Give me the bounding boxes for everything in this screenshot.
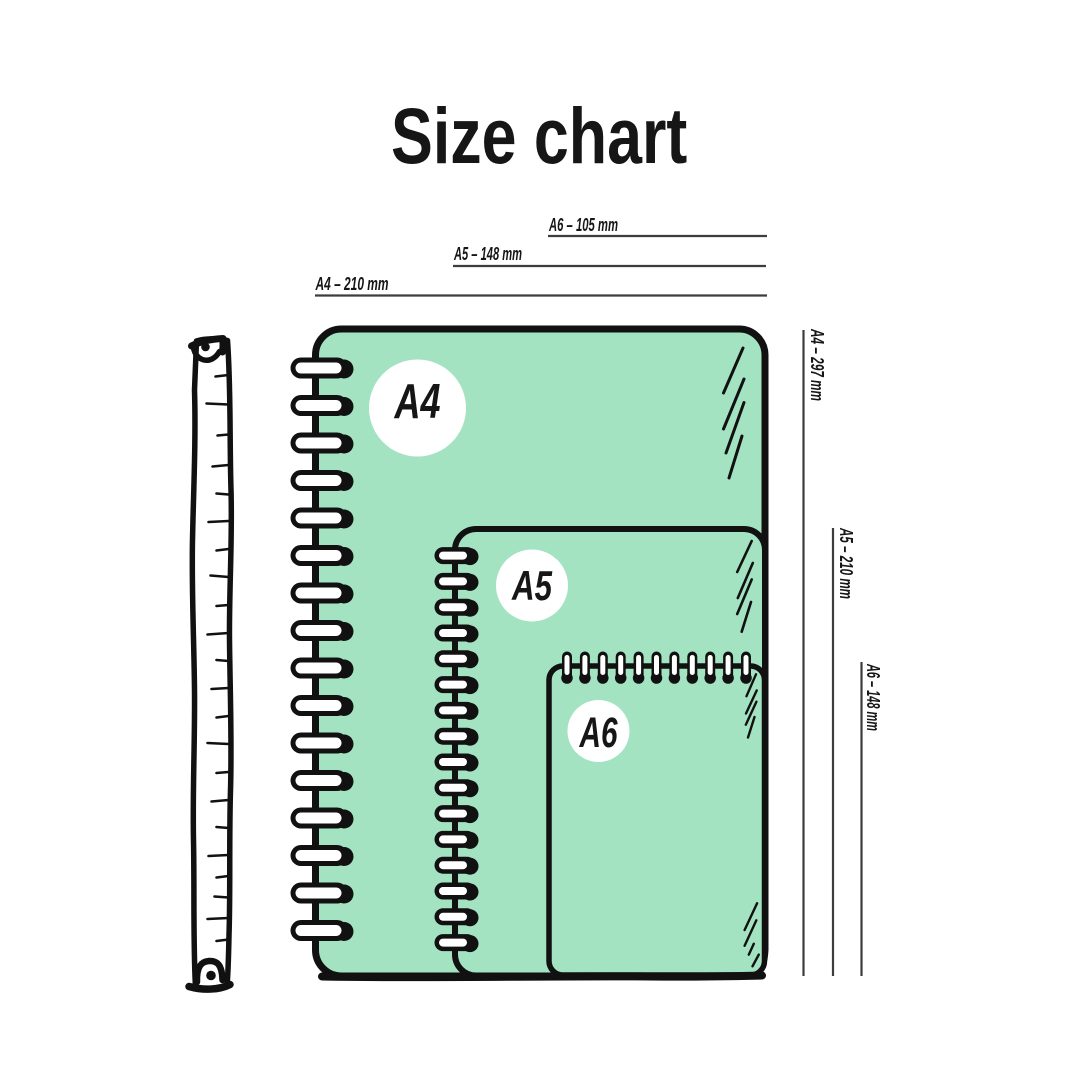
svg-text:A5 – 210 mm: A5 – 210 mm xyxy=(836,527,857,599)
svg-text:Size chart: Size chart xyxy=(391,92,687,180)
svg-text:A4: A4 xyxy=(394,375,441,429)
svg-text:A6 – 105 mm: A6 – 105 mm xyxy=(548,214,618,235)
svg-text:A4 – 297 mm: A4 – 297 mm xyxy=(807,328,828,401)
svg-text:A5 – 148 mm: A5 – 148 mm xyxy=(453,243,522,264)
svg-text:A6 – 148 mm: A6 – 148 mm xyxy=(863,663,884,731)
svg-text:A5: A5 xyxy=(511,562,552,609)
svg-text:A6: A6 xyxy=(579,709,618,757)
svg-text:A4 – 210 mm: A4 – 210 mm xyxy=(315,273,389,294)
